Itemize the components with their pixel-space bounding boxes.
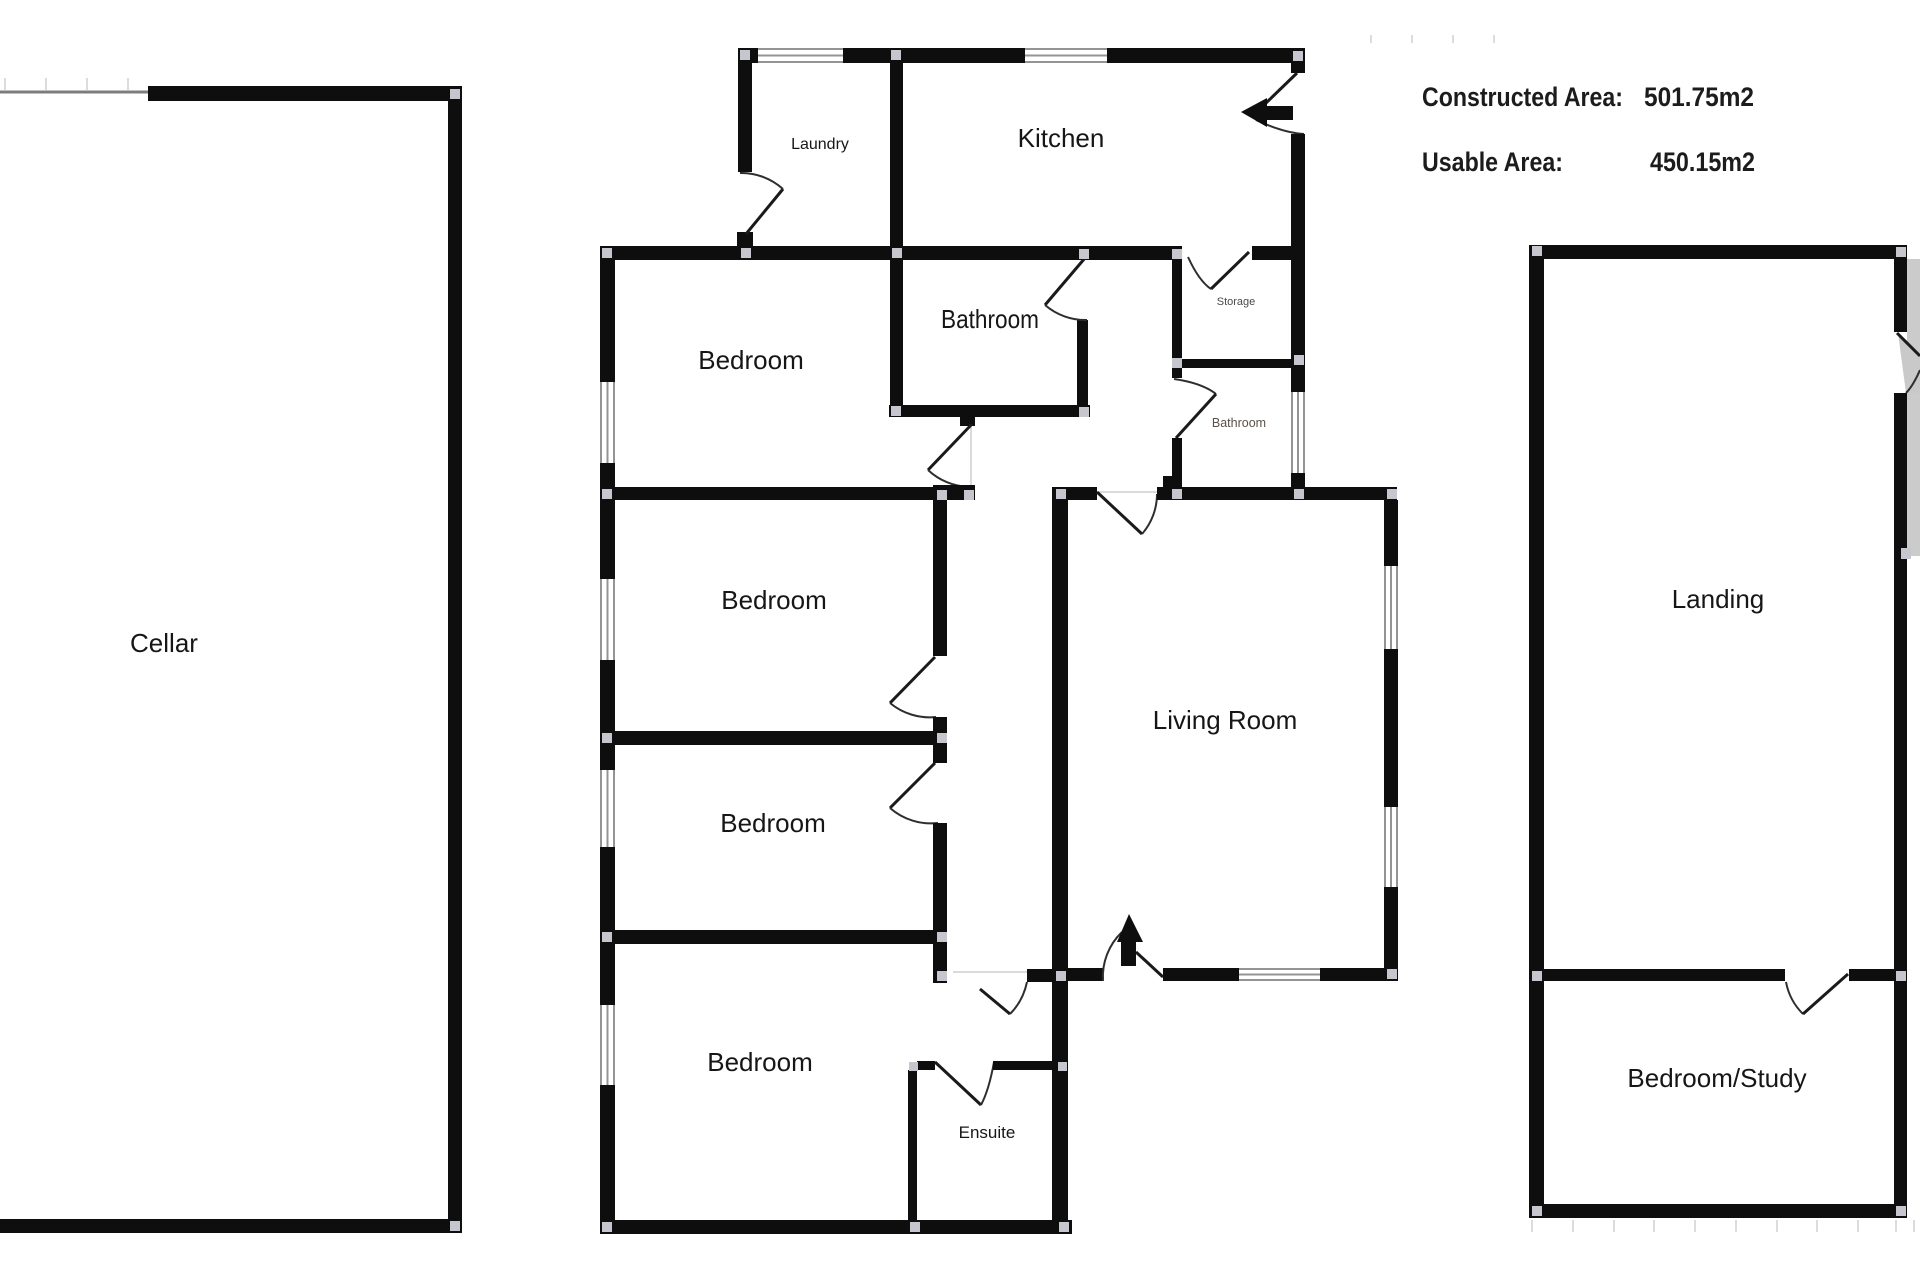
svg-text:Bedroom: Bedroom	[720, 808, 826, 838]
svg-text:Storage: Storage	[1217, 296, 1256, 308]
svg-text:Landing: Landing	[1672, 584, 1765, 614]
svg-text:Kitchen: Kitchen	[1018, 123, 1105, 153]
svg-text:Usable Area:: Usable Area:	[1422, 147, 1563, 177]
svg-text:Ensuite: Ensuite	[959, 1123, 1016, 1142]
svg-text:Constructed Area:: Constructed Area:	[1422, 82, 1623, 112]
svg-text:Bedroom/Study: Bedroom/Study	[1627, 1063, 1806, 1093]
svg-text:501.75m2: 501.75m2	[1644, 82, 1754, 112]
svg-text:Bedroom: Bedroom	[698, 345, 804, 375]
svg-text:450.15m2: 450.15m2	[1650, 147, 1755, 177]
svg-text:Bathroom: Bathroom	[941, 304, 1039, 334]
svg-text:Laundry: Laundry	[791, 136, 849, 153]
svg-text:Bedroom: Bedroom	[721, 585, 827, 615]
svg-text:Living Room: Living Room	[1153, 705, 1298, 735]
svg-text:Bathroom: Bathroom	[1212, 416, 1266, 430]
svg-text:Cellar: Cellar	[130, 628, 198, 658]
svg-text:Bedroom: Bedroom	[707, 1047, 813, 1077]
